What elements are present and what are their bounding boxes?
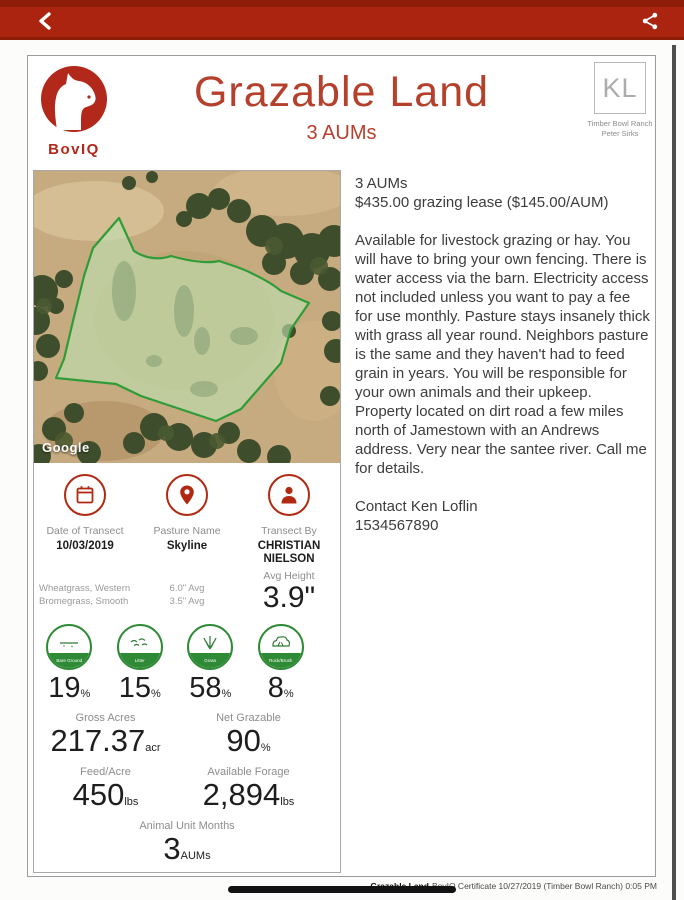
transect-by-cell: Transect By CHRISTIAN NIELSON	[238, 474, 340, 566]
species-averages: 6.0" Avg 3.5" Avg	[136, 582, 238, 614]
navigation-pill[interactable]	[228, 886, 456, 893]
listing-aums: 3 AUMs	[355, 174, 651, 193]
litter-label: Litter	[135, 658, 145, 663]
date-of-transect-label: Date of Transect	[34, 525, 136, 537]
feed-acre-metric: Feed/Acre 450lbs	[34, 766, 177, 811]
app-bar	[0, 0, 684, 40]
avg-height-cell: Avg Height 3.9"	[238, 570, 340, 614]
rock-brush-percent: 8%	[246, 672, 317, 704]
species-line-2: Bromegrass, Smooth	[39, 595, 136, 608]
page-title: Grazable Land	[28, 68, 655, 117]
transect-by-label: Transect By	[238, 525, 340, 537]
transect-by-value: CHRISTIAN NIELSON	[250, 540, 328, 566]
species-avg-2: 3.5" Avg	[136, 595, 238, 608]
species-avg-1: 6.0" Avg	[136, 582, 238, 595]
pasture-name-value: Skyline	[136, 540, 238, 553]
bare-ground-label: Bare Ground	[56, 658, 82, 663]
grass-badge: Grass	[187, 624, 233, 670]
grass-percent: 58%	[175, 672, 246, 704]
footer-certificate-text: BovIQ Certificate 10/27/2019 (Timber Bow…	[432, 881, 657, 891]
person-icon	[268, 474, 310, 516]
share-icon	[640, 11, 660, 31]
aum-value: 3	[163, 831, 180, 866]
listing-price: $435.00 grazing lease ($145.00/AUM)	[355, 193, 651, 212]
bare-ground-badge: Bare Ground	[46, 624, 92, 670]
ranch-name: Timber Bowl Ranch	[587, 119, 652, 129]
bare-ground-icon	[48, 628, 90, 654]
google-attribution: Google	[42, 440, 90, 455]
certificate-card: BovIQ Grazable Land 3 AUMs KL Timber Bow…	[27, 55, 656, 877]
rock-brush-label: Rock/Brush	[269, 658, 292, 663]
litter-icon	[119, 628, 161, 654]
satellite-imagery	[34, 171, 340, 463]
avg-height-value: 3.9"	[238, 582, 340, 614]
gross-acres-value: 217.37	[50, 723, 145, 758]
transect-info-row: Date of Transect 10/03/2019 Pasture Name…	[34, 474, 340, 566]
date-of-transect-value: 10/03/2019	[34, 540, 136, 553]
listing-details: 3 AUMs $435.00 grazing lease ($145.00/AU…	[355, 174, 651, 535]
net-grazable-metric: Net Grazable 90%	[177, 712, 320, 757]
available-forage-value: 2,894	[203, 777, 281, 812]
species-line-1: Wheatgrass, Western	[39, 582, 136, 595]
forage-metrics-row: Feed/Acre 450lbs Available Forage 2,894l…	[34, 766, 340, 811]
aum-label: Animal Unit Months	[34, 820, 340, 832]
scrollbar[interactable]	[672, 45, 676, 900]
grass-icon	[189, 628, 231, 654]
page-subtitle: 3 AUMs	[28, 122, 655, 145]
back-button[interactable]	[36, 11, 56, 31]
pasture-name-cell: Pasture Name Skyline	[136, 474, 238, 566]
composition-badges: Bare Ground Litter	[34, 624, 340, 670]
calendar-icon	[64, 474, 106, 516]
ranch-identity: KL Timber Bowl Ranch Peter Sirks	[588, 62, 652, 139]
litter-percent: 15%	[105, 672, 176, 704]
location-pin-icon	[166, 474, 208, 516]
gross-acres-metric: Gross Acres 217.37acr	[34, 712, 177, 757]
aum-metric: Animal Unit Months 3AUMs	[34, 820, 340, 865]
transect-panel: Google Date of Transect 10/03/2019	[33, 170, 341, 873]
ranch-owner: Peter Sirks	[602, 129, 639, 139]
listing-description: Available for livestock grazing or hay. …	[355, 231, 651, 478]
rock-brush-badge: Rock/Brush	[258, 624, 304, 670]
acreage-metrics-row: Gross Acres 217.37acr Net Grazable 90%	[34, 712, 340, 757]
rock-brush-icon	[260, 628, 302, 654]
bare-ground-percent: 19%	[34, 672, 105, 704]
composition-percentages: 19% 15% 58% 8%	[34, 672, 340, 704]
pasture-name-label: Pasture Name	[136, 525, 238, 537]
net-grazable-value: 90	[226, 723, 260, 758]
transect-date-cell: Date of Transect 10/03/2019	[34, 474, 136, 566]
grass-label: Grass	[204, 658, 216, 663]
grazable-land-certificate-page: BovIQ Grazable Land 3 AUMs KL Timber Bow…	[0, 0, 684, 900]
share-button[interactable]	[640, 11, 660, 31]
feed-acre-value: 450	[73, 777, 125, 812]
ranch-logo: KL	[594, 62, 646, 114]
satellite-map[interactable]: Google	[34, 171, 340, 463]
listing-phone: 1534567890	[355, 516, 651, 535]
available-forage-metric: Available Forage 2,894lbs	[177, 766, 320, 811]
species-row: Wheatgrass, Western Bromegrass, Smooth 6…	[34, 570, 340, 614]
listing-contact: Contact Ken Loflin	[355, 497, 651, 516]
litter-badge: Litter	[117, 624, 163, 670]
back-chevron-icon	[36, 11, 56, 31]
species-list: Wheatgrass, Western Bromegrass, Smooth	[34, 582, 136, 614]
